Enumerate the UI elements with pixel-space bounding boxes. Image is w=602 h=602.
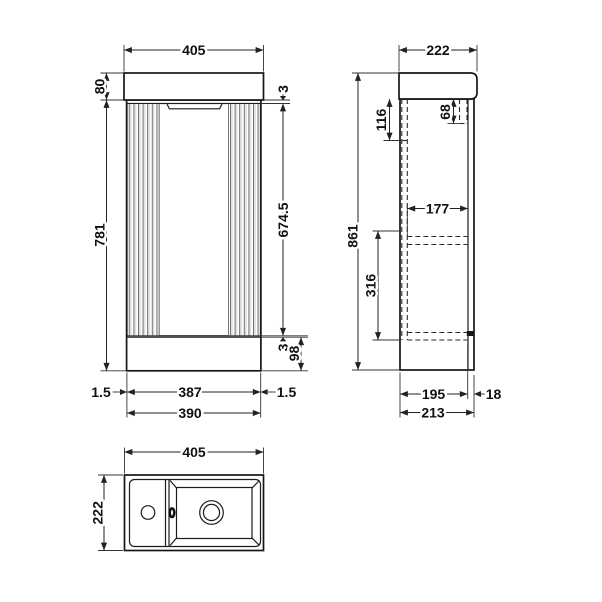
- dim-door-top-detail: 116: [373, 108, 389, 131]
- dim-top-width: 405: [182, 444, 206, 460]
- side-countertop: [399, 73, 477, 99]
- dim-top-depth: 222: [90, 501, 106, 525]
- front-door-flutes-right: [228, 104, 260, 335]
- dim-shelf-clearance: 316: [363, 274, 379, 298]
- dim-carcass-height: 781: [92, 223, 108, 247]
- dim-front-width: 405: [182, 42, 206, 58]
- dim-counter-height: 80: [92, 79, 108, 95]
- dim-door-gap-left: 1.5: [91, 384, 111, 400]
- dim-back-offset: 18: [486, 386, 502, 402]
- side-bottom-shelf-fixing: [467, 331, 474, 336]
- vanity-unit-dimension-drawing: 405 80 781 3 674.5 3 98 1.5 387 1.: [0, 0, 602, 602]
- dim-side-depth: 222: [426, 42, 450, 58]
- overflow-slot: [170, 508, 175, 517]
- dim-door-width: 387: [178, 384, 202, 400]
- dim-plinth-height: 98: [286, 346, 302, 362]
- dim-door-gap-right: 1.5: [277, 384, 297, 400]
- side-cabinet-carcass: [400, 99, 474, 370]
- dim-overall-depth: 213: [421, 405, 445, 421]
- dim-door-top-gap: 3: [275, 85, 291, 93]
- dim-carcass-width: 390: [178, 405, 202, 421]
- dim-back-bracket: 68: [437, 104, 453, 120]
- dim-shelf-depth: 177: [426, 201, 450, 217]
- dim-overall-height: 861: [345, 224, 361, 248]
- front-countertop: [124, 73, 264, 100]
- top-countertop: [125, 475, 264, 551]
- technical-drawing-page: 405 80 781 3 674.5 3 98 1.5 387 1.: [0, 0, 602, 602]
- top-view: [125, 475, 264, 551]
- dim-base-depth: 195: [422, 386, 446, 402]
- front-view: [124, 73, 264, 371]
- front-door-flutes-left: [128, 104, 160, 335]
- dim-door-height: 674.5: [275, 202, 291, 237]
